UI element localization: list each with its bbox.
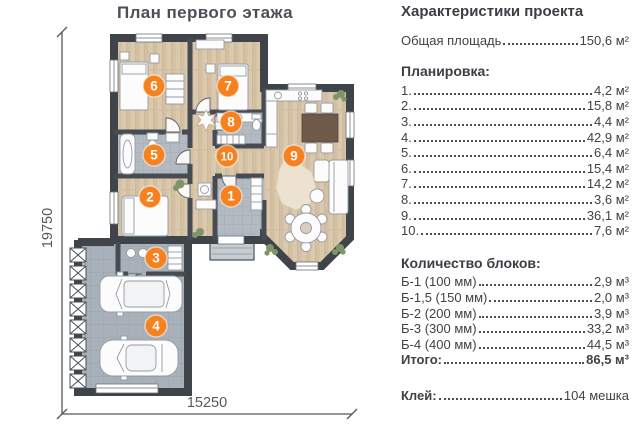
room-badge-5: 5	[143, 144, 165, 166]
room-badge-4: 4	[145, 315, 167, 337]
layout-item-10: 10.7,6 м²	[401, 223, 629, 239]
block-item-2: Б-1,5 (150 мм)2,0 м³	[401, 290, 629, 306]
blocks-total-value: 86,5 м³	[586, 352, 629, 368]
block-item-5-label: Б-4 (400 мм)	[401, 337, 477, 353]
layout-item-6: 6.15,4 м²	[401, 161, 629, 177]
room-badge-number: 2	[146, 190, 154, 205]
glue-label: Клей:	[401, 388, 437, 404]
block-item-5-value: 44,5 м³	[587, 337, 629, 353]
leader-dots	[414, 124, 592, 126]
car-sedan	[100, 336, 178, 380]
layout-item-1-label: 1.	[401, 83, 412, 99]
layout-item-4: 4.42,9 м²	[401, 130, 629, 146]
block-item-4: Б-3 (300 мм)33,2 м³	[401, 321, 629, 337]
room-badge-number: 3	[152, 251, 160, 266]
layout-item-1: 1.4,2 м²	[401, 83, 629, 99]
layout-item-8-label: 8.	[401, 192, 412, 208]
total-area-value: 150,6 м²	[580, 33, 629, 49]
room-badge-number: 7	[224, 79, 232, 94]
layout-item-4-value: 42,9 м²	[587, 130, 629, 146]
glue-value: 104 мешка	[564, 388, 629, 404]
specs-header: Характеристики проекта	[401, 4, 629, 20]
leader-dots	[414, 186, 585, 188]
block-item-2-value: 2,0 м³	[594, 290, 629, 306]
leader-dots	[503, 43, 577, 45]
leader-dots	[439, 398, 562, 400]
glue-row: Клей: 104 мешка	[401, 388, 629, 404]
room-badge-3: 3	[145, 247, 167, 269]
leader-dots	[444, 362, 584, 364]
leader-dots	[414, 171, 585, 173]
layout-item-9-value: 36,1 м²	[587, 208, 629, 224]
blocks-list: Б-1 (100 мм)2,9 м³Б-1,5 (150 мм)2,0 м³Б-…	[401, 274, 629, 352]
room-badge-2: 2	[139, 186, 161, 208]
blocks-total-row: Итого: 86,5 м³	[401, 352, 629, 368]
blocks-header: Количество блоков:	[401, 256, 629, 272]
layout-item-6-value: 15,4 м²	[587, 161, 629, 177]
layout-item-3: 3.4,4 м²	[401, 114, 629, 130]
dimension-width-label: 15250	[187, 395, 227, 411]
floor-plan-panel: План первого этажа	[0, 0, 395, 433]
block-item-3-value: 3,9 м³	[594, 306, 629, 322]
layout-item-8-value: 3,6 м²	[594, 192, 629, 208]
room-badge-6: 6	[143, 75, 165, 97]
layout-item-4-label: 4.	[401, 130, 412, 146]
block-item-2-label: Б-1,5 (150 мм)	[401, 290, 487, 306]
block-item-4-value: 33,2 м³	[587, 321, 629, 337]
layout-item-3-value: 4,4 м²	[594, 114, 629, 130]
leader-dots	[414, 108, 585, 110]
room-badge-number: 5	[150, 148, 158, 163]
leader-dots	[479, 316, 593, 318]
room-badge-number: 1	[227, 189, 235, 204]
dimension-height-label: 19750	[40, 208, 56, 248]
leader-dots	[479, 347, 585, 349]
layout-item-3-label: 3.	[401, 114, 412, 130]
floor-plan-svg: 19750 15250	[0, 0, 395, 433]
layout-item-6-label: 6.	[401, 161, 412, 177]
leader-dots	[479, 284, 593, 286]
leader-dots	[479, 331, 585, 333]
layout-item-5: 5.6,4 м²	[401, 145, 629, 161]
leader-dots	[414, 93, 592, 95]
room-badge-10: 10	[216, 145, 238, 167]
room-badge-number: 8	[227, 115, 235, 130]
room-badge-number: 10	[221, 152, 234, 164]
leader-dots	[414, 155, 592, 157]
leader-dots	[421, 233, 592, 235]
room-badge-number: 4	[152, 319, 160, 334]
room-badge-7: 7	[217, 75, 239, 97]
room-badge-1: 1	[220, 185, 242, 207]
specs-panel: Характеристики проекта Общая площадь 150…	[401, 2, 629, 403]
layout-list: 1.4,2 м²2.15,8 м²3.4,4 м²4.42,9 м²5.6,4 …	[401, 83, 629, 239]
block-item-1: Б-1 (100 мм)2,9 м³	[401, 274, 629, 290]
car-suv	[100, 272, 182, 316]
coffee-table	[310, 189, 324, 203]
leader-dots	[414, 202, 592, 204]
block-item-1-value: 2,9 м³	[594, 274, 629, 290]
layout-item-7-label: 7.	[401, 176, 412, 192]
block-item-4-label: Б-3 (300 мм)	[401, 321, 477, 337]
room-badge-number: 6	[150, 79, 158, 94]
room-badge-9: 9	[283, 145, 305, 167]
block-item-5: Б-4 (400 мм)44,5 м³	[401, 337, 629, 353]
layout-item-8: 8.3,6 м²	[401, 192, 629, 208]
total-area-row: Общая площадь 150,6 м²	[401, 33, 629, 49]
leader-dots	[414, 218, 585, 220]
layout-header: Планировка:	[401, 64, 629, 80]
total-area-label: Общая площадь	[401, 33, 501, 49]
layout-item-5-value: 6,4 м²	[594, 145, 629, 161]
room-badge-number: 9	[290, 149, 298, 164]
block-item-3-label: Б-2 (200 мм)	[401, 306, 477, 322]
layout-item-9-label: 9.	[401, 208, 412, 224]
blocks-total-label: Итого:	[401, 352, 442, 368]
layout-item-7-value: 14,2 м²	[587, 176, 629, 192]
layout-item-7: 7.14,2 м²	[401, 176, 629, 192]
layout-item-2-label: 2.	[401, 98, 412, 114]
layout-item-10-value: 7,6 м²	[594, 223, 629, 239]
block-item-3: Б-2 (200 мм)3,9 м³	[401, 306, 629, 322]
leader-dots	[414, 140, 585, 142]
room-badge-8: 8	[220, 111, 242, 133]
layout-item-2-value: 15,8 м²	[587, 98, 629, 114]
layout-item-9: 9.36,1 м²	[401, 208, 629, 224]
porch-steps	[210, 242, 254, 260]
layout-item-2: 2.15,8 м²	[401, 98, 629, 114]
leader-dots	[489, 300, 592, 302]
layout-item-5-label: 5.	[401, 145, 412, 161]
block-item-1-label: Б-1 (100 мм)	[401, 274, 477, 290]
layout-item-1-value: 4,2 м²	[594, 83, 629, 99]
layout-item-10-label: 10.	[401, 223, 419, 239]
